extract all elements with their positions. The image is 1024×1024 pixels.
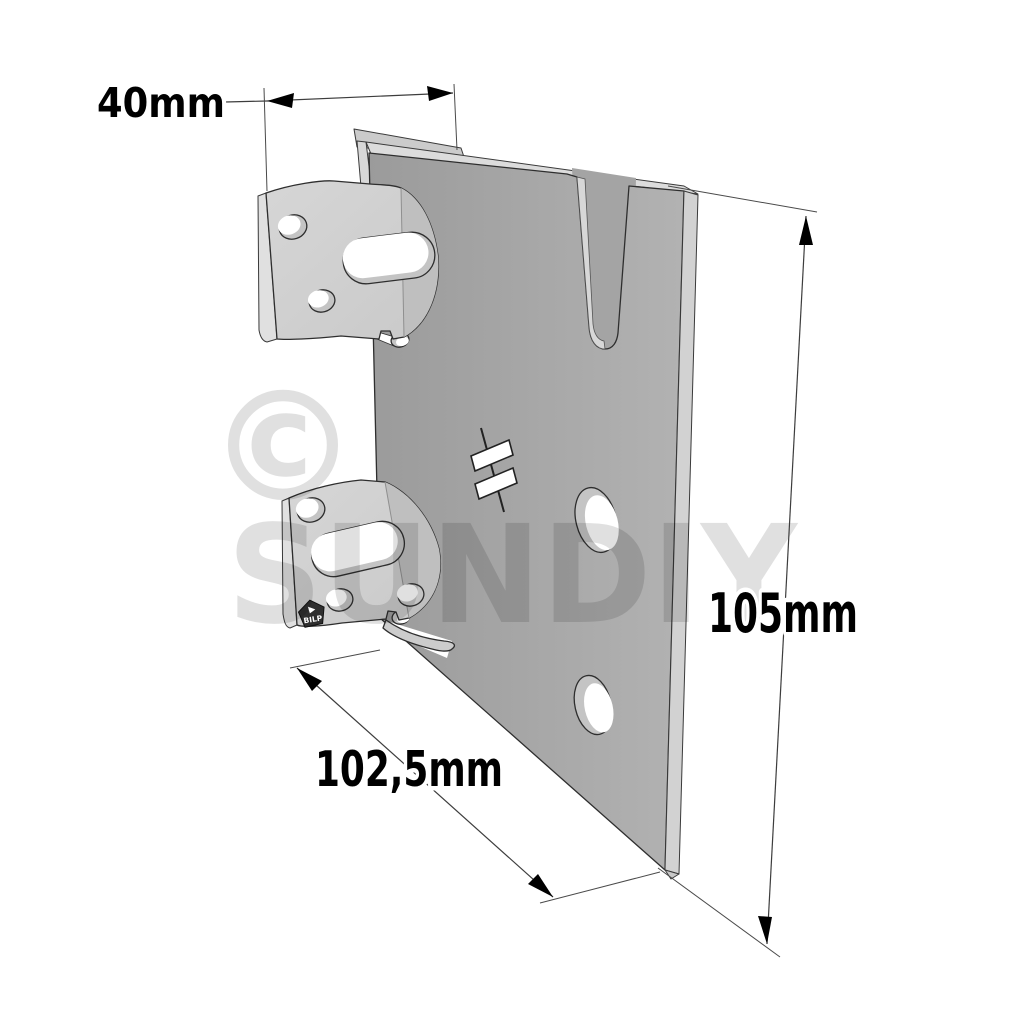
extension-line: [454, 84, 457, 150]
arrow-left-icon: [267, 93, 294, 108]
dimension-label-top-width: 40mm: [97, 79, 225, 127]
extension-line: [264, 88, 267, 191]
arrow-up-icon: [799, 216, 813, 245]
leader-line: [225, 101, 267, 102]
arrow-down-icon: [758, 916, 772, 944]
upper-tab: [258, 181, 438, 342]
extension-line: [540, 872, 660, 903]
product-image: BILP © SUNDIY 40mm 105mm 102,5mm: [0, 0, 1024, 1024]
bracket-technical-render: BILP © SUNDIY 40mm 105mm 102,5mm: [0, 0, 1024, 1024]
dimension-label-right-height: 105mm: [708, 582, 858, 645]
dimension-label-bottom-width: 102,5mm: [315, 741, 503, 798]
dimension-line: [267, 93, 453, 101]
extension-line: [658, 868, 780, 957]
arrow-right-icon: [427, 86, 453, 101]
